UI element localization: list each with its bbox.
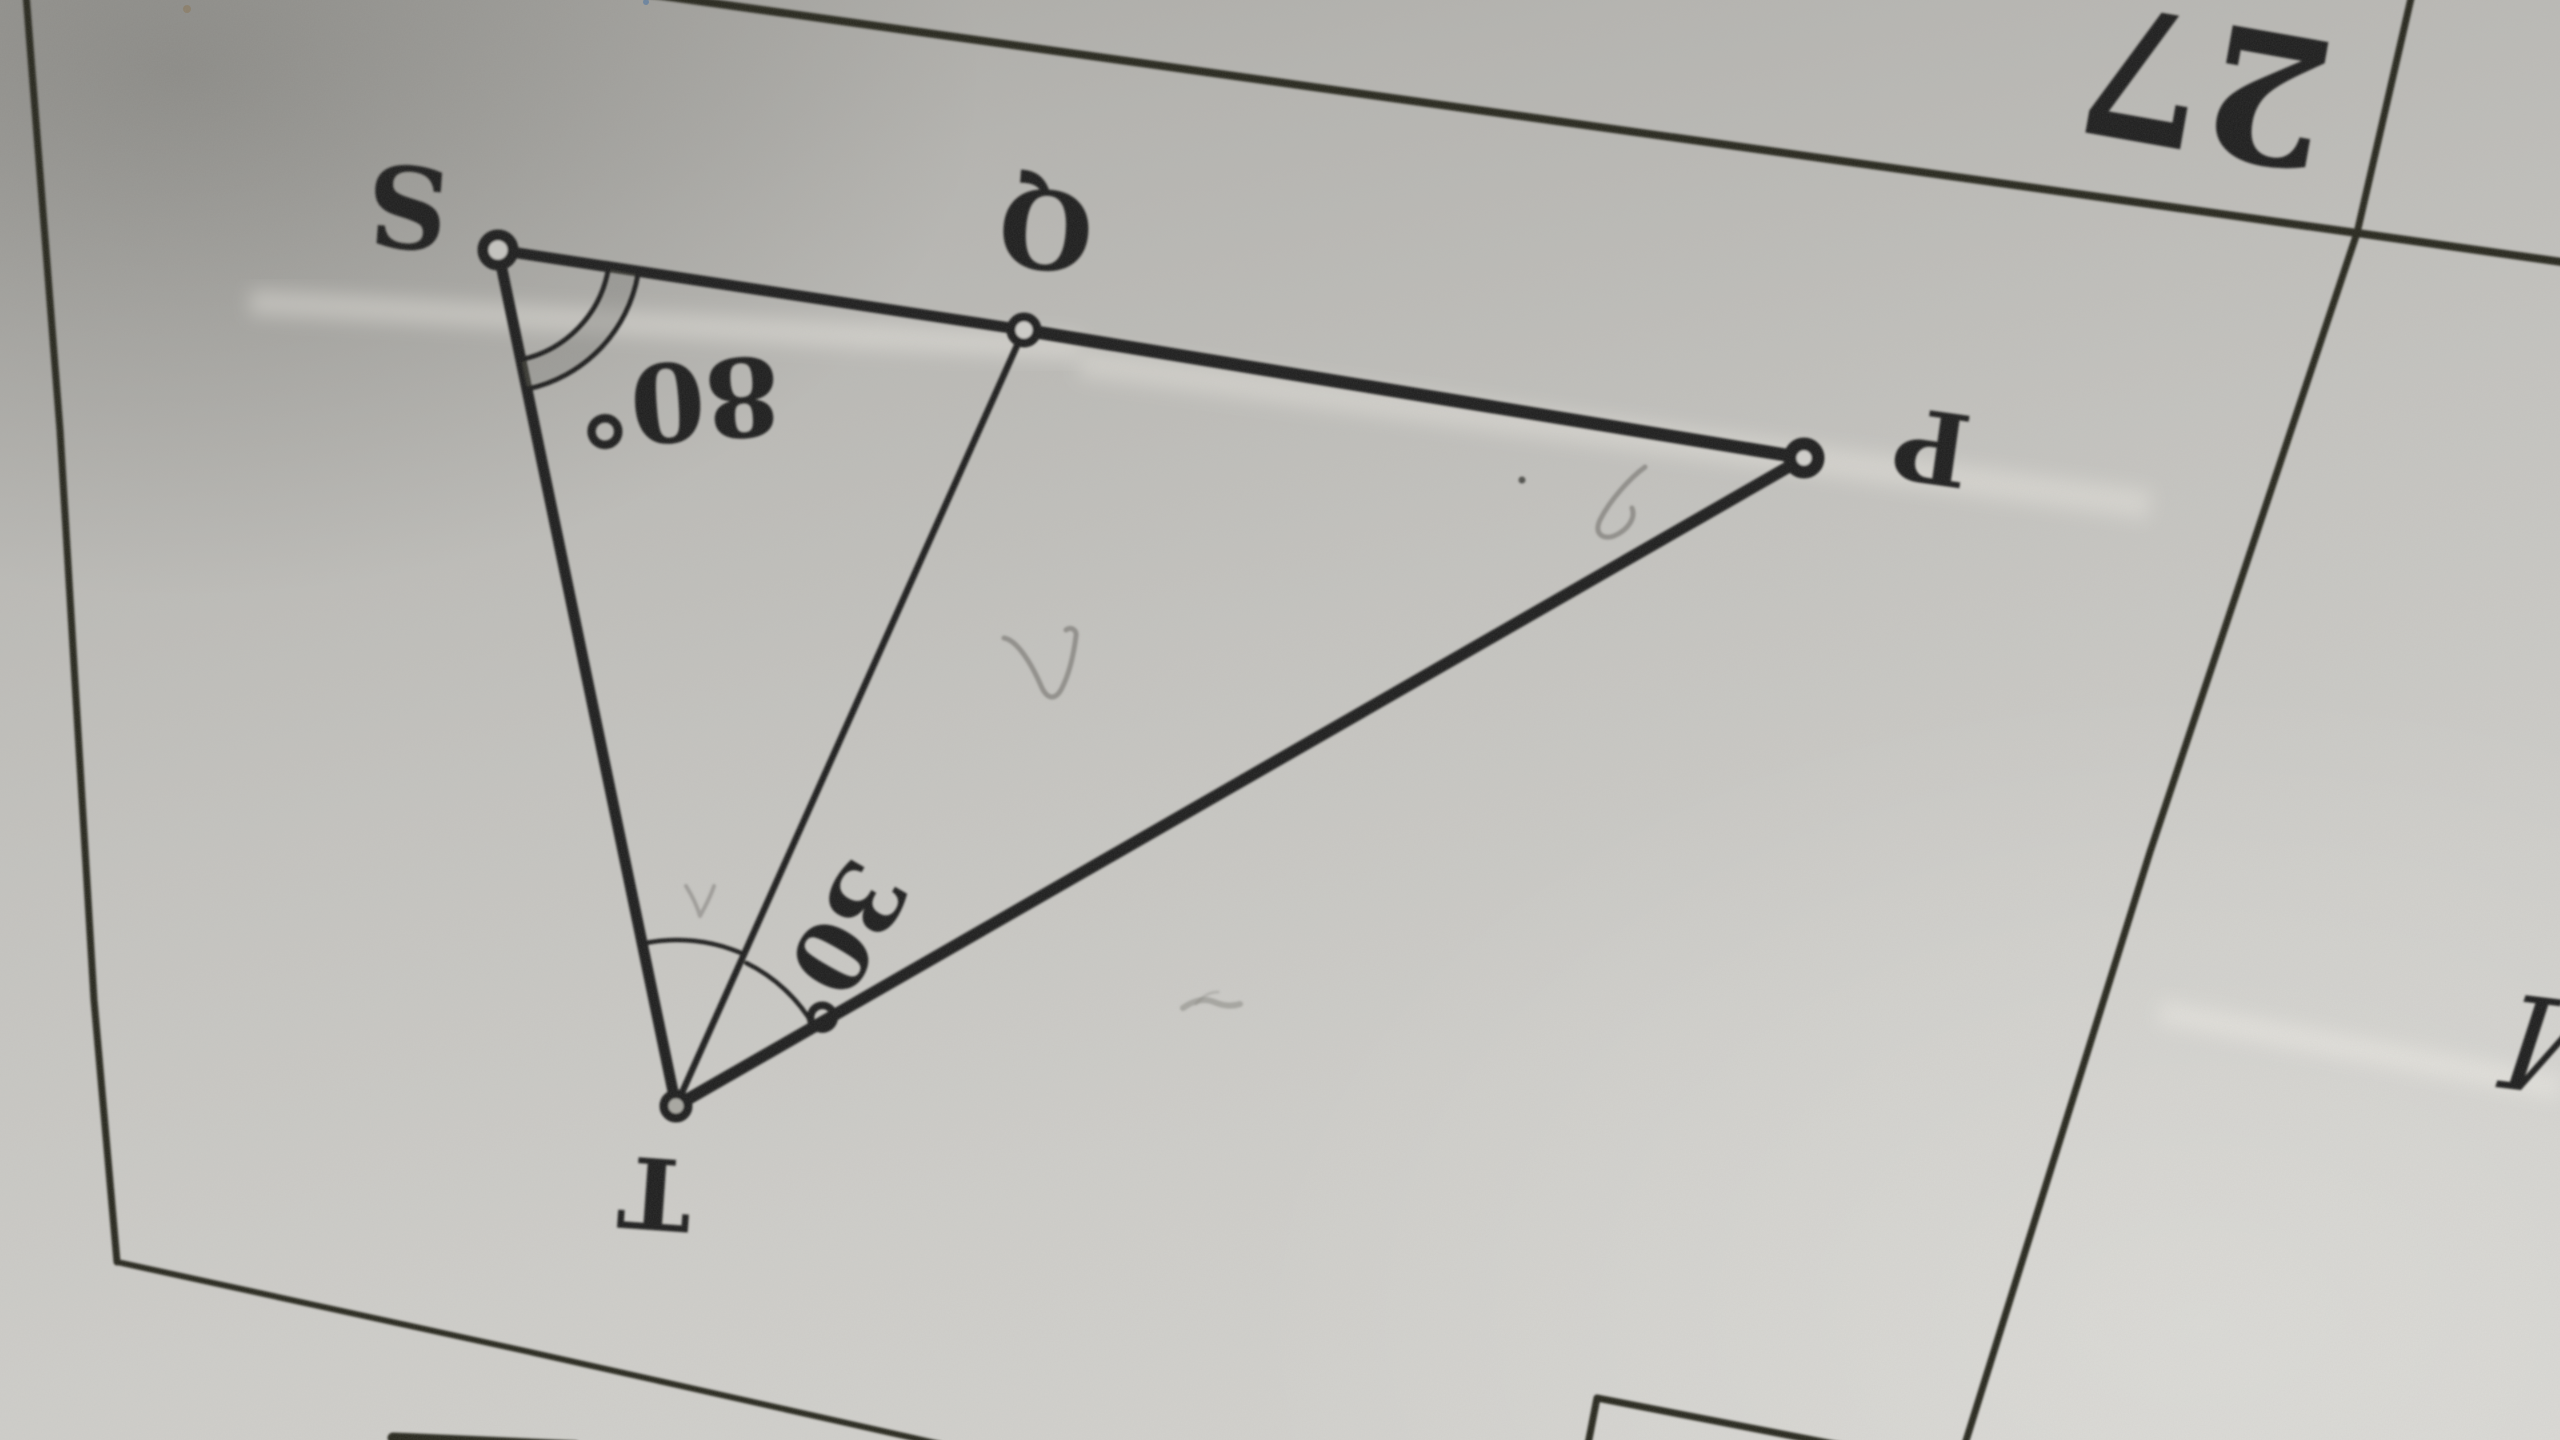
photographed-worksheet: 27 M S Q P T 80° 30° (0, 0, 2560, 1440)
noise-overlay (0, 0, 2560, 1440)
